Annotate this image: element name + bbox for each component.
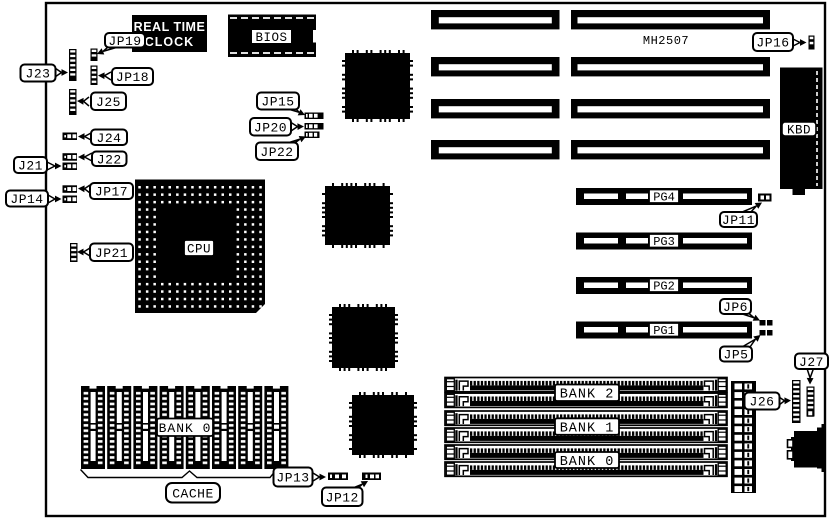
svg-text:JP18: JP18 (116, 70, 149, 85)
svg-text:J27: J27 (799, 355, 824, 370)
svg-text:J23: J23 (26, 67, 51, 82)
svg-text:JP15: JP15 (261, 95, 294, 110)
svg-text:JP21: JP21 (95, 246, 128, 261)
svg-text:JP5: JP5 (724, 348, 749, 363)
svg-text:JP19: JP19 (108, 34, 141, 49)
svg-text:JP16: JP16 (756, 36, 789, 51)
svg-text:CLOCK: CLOCK (145, 35, 194, 49)
svg-text:JP6: JP6 (723, 300, 748, 315)
svg-text:PG4: PG4 (653, 191, 675, 205)
svg-text:JP11: JP11 (722, 213, 755, 228)
svg-text:JP22: JP22 (260, 145, 293, 160)
svg-text:PG1: PG1 (653, 324, 675, 338)
svg-text:JP20: JP20 (254, 120, 287, 135)
svg-text:CPU: CPU (187, 243, 211, 257)
svg-text:J24: J24 (97, 131, 122, 146)
svg-text:J25: J25 (96, 95, 121, 110)
svg-text:REAL TIME: REAL TIME (134, 20, 206, 34)
svg-text:BIOS: BIOS (255, 31, 287, 45)
svg-text:JP17: JP17 (95, 185, 128, 200)
svg-text:J22: J22 (97, 152, 122, 167)
svg-text:JP13: JP13 (276, 471, 309, 486)
svg-text:KBD: KBD (787, 124, 811, 138)
svg-text:JP12: JP12 (326, 490, 359, 505)
svg-text:JP14: JP14 (10, 192, 43, 207)
svg-text:PG2: PG2 (653, 280, 675, 294)
svg-text:PG3: PG3 (653, 235, 675, 249)
svg-text:BANK 1: BANK 1 (560, 421, 615, 436)
svg-text:BANK 0: BANK 0 (159, 421, 212, 436)
svg-text:CACHE: CACHE (172, 486, 214, 501)
svg-text:BANK 2: BANK 2 (560, 388, 615, 403)
svg-text:J21: J21 (18, 159, 43, 174)
svg-text:J26: J26 (750, 395, 775, 410)
svg-text:MH2507: MH2507 (643, 34, 689, 48)
svg-text:BANK 0: BANK 0 (560, 455, 615, 470)
